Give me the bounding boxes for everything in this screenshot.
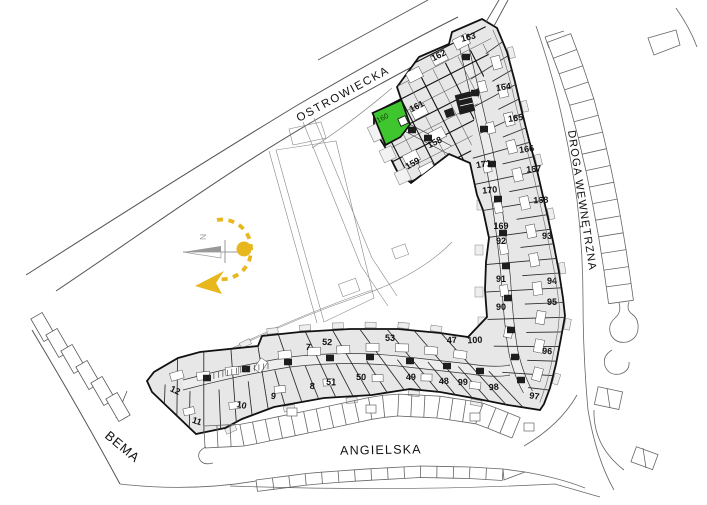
svg-text:168: 168 bbox=[533, 195, 549, 206]
svg-text:90: 90 bbox=[496, 302, 506, 312]
svg-text:97: 97 bbox=[529, 390, 540, 401]
svg-text:98: 98 bbox=[488, 382, 499, 393]
svg-text:7: 7 bbox=[305, 342, 311, 352]
svg-text:N: N bbox=[198, 234, 208, 240]
svg-text:ANGIELSKA: ANGIELSKA bbox=[340, 442, 422, 457]
svg-text:92: 92 bbox=[496, 236, 506, 246]
svg-text:95: 95 bbox=[547, 297, 557, 307]
svg-text:170: 170 bbox=[482, 184, 498, 195]
svg-text:96: 96 bbox=[542, 346, 553, 357]
svg-text:10: 10 bbox=[236, 399, 248, 411]
svg-text:99: 99 bbox=[458, 377, 469, 388]
svg-text:91: 91 bbox=[496, 274, 506, 284]
svg-text:8: 8 bbox=[309, 381, 315, 391]
svg-text:49: 49 bbox=[406, 372, 416, 382]
svg-text:167: 167 bbox=[526, 163, 542, 174]
svg-text:48: 48 bbox=[439, 376, 450, 387]
svg-text:165: 165 bbox=[507, 112, 523, 124]
svg-text:53: 53 bbox=[385, 333, 395, 343]
svg-text:51: 51 bbox=[326, 377, 337, 388]
svg-text:169: 169 bbox=[493, 221, 508, 231]
svg-text:52: 52 bbox=[322, 337, 333, 348]
svg-text:47: 47 bbox=[447, 335, 458, 346]
svg-text:50: 50 bbox=[356, 372, 366, 382]
svg-text:100: 100 bbox=[467, 335, 483, 346]
